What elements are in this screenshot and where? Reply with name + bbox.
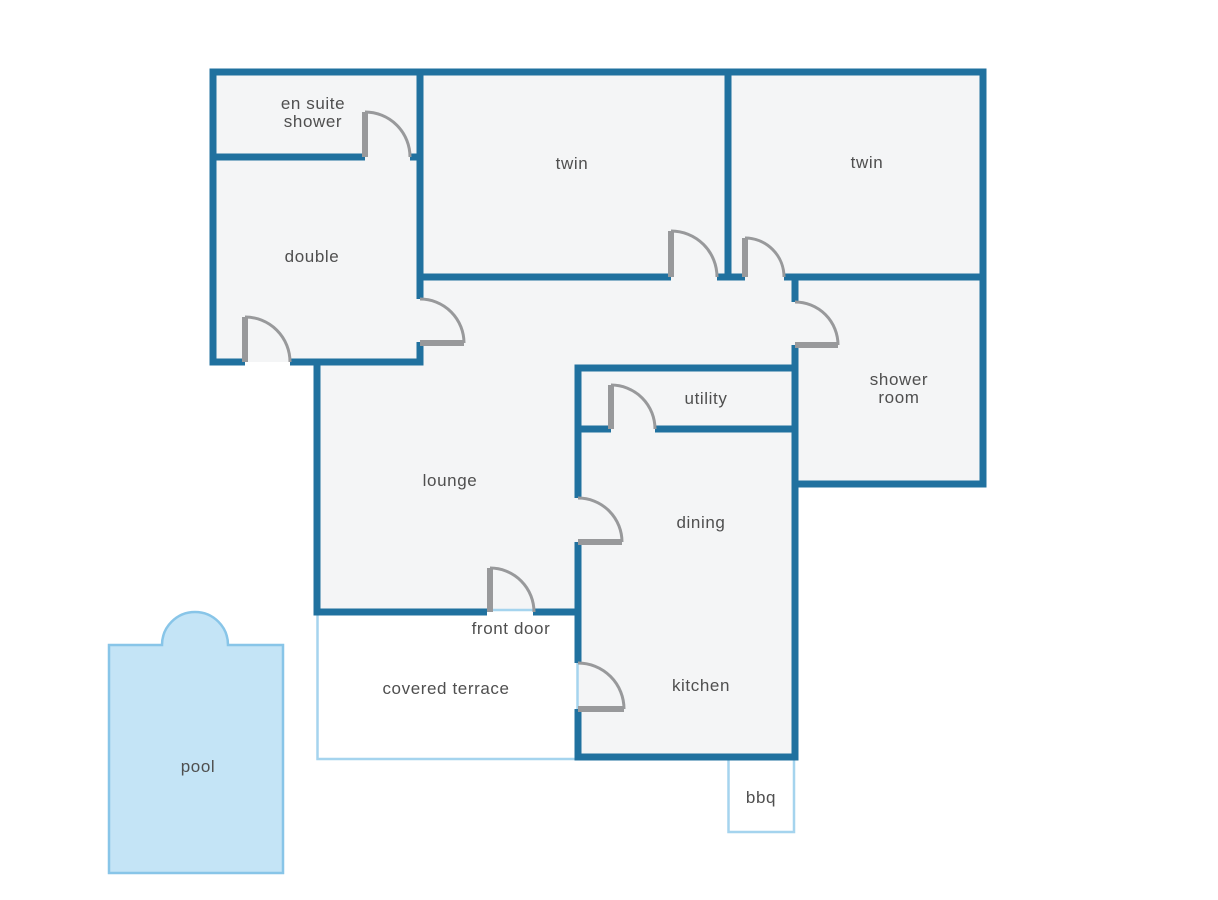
floor-plan-image: en suite shower double twin twin shower …: [0, 0, 1218, 900]
wall-segment: [210, 154, 366, 161]
wall-segment: [575, 542, 582, 663]
label-en-suite-line2: shower: [284, 112, 342, 131]
wall-segment: [575, 709, 582, 761]
label-twin-right: twin: [851, 153, 884, 172]
wall-segment: [314, 609, 488, 616]
wall-segment: [655, 426, 799, 433]
label-bbq: bbq: [746, 788, 776, 807]
label-shower-room-line2: room: [878, 388, 919, 407]
label-dining: dining: [677, 513, 726, 532]
wall-segment: [417, 69, 424, 300]
wall-segment: [210, 69, 217, 366]
wall-segment: [792, 481, 987, 488]
wall-segment: [210, 69, 987, 76]
wall-segment: [575, 754, 799, 761]
label-kitchen: kitchen: [672, 676, 730, 695]
wall-segment: [410, 154, 424, 161]
label-front-door: front door: [472, 619, 551, 638]
wall-segment: [575, 426, 612, 433]
wall-segment: [725, 69, 732, 281]
label-lounge: lounge: [423, 471, 478, 490]
wall-segment: [717, 274, 745, 281]
wall-segment: [784, 274, 987, 281]
label-pool: pool: [181, 757, 216, 776]
wall-segment: [575, 365, 799, 372]
label-shower-room-line1: shower: [870, 370, 928, 389]
pool-shape: [109, 612, 283, 873]
label-twin-middle: twin: [556, 154, 589, 173]
label-double: double: [285, 247, 340, 266]
label-utility: utility: [685, 389, 728, 408]
wall-segment: [210, 359, 246, 366]
floor-twin-rooms: [420, 72, 983, 277]
wall-segment: [792, 274, 799, 303]
label-en-suite-line1: en suite: [281, 94, 345, 113]
wall-segment: [314, 359, 321, 616]
floor-plan-svg: en suite shower double twin twin shower …: [0, 0, 1218, 900]
label-covered-terrace: covered terrace: [382, 679, 509, 698]
wall-segment: [290, 359, 424, 366]
wall-segment: [533, 609, 582, 616]
wall-segment: [792, 481, 799, 761]
wall-segment: [417, 274, 672, 281]
